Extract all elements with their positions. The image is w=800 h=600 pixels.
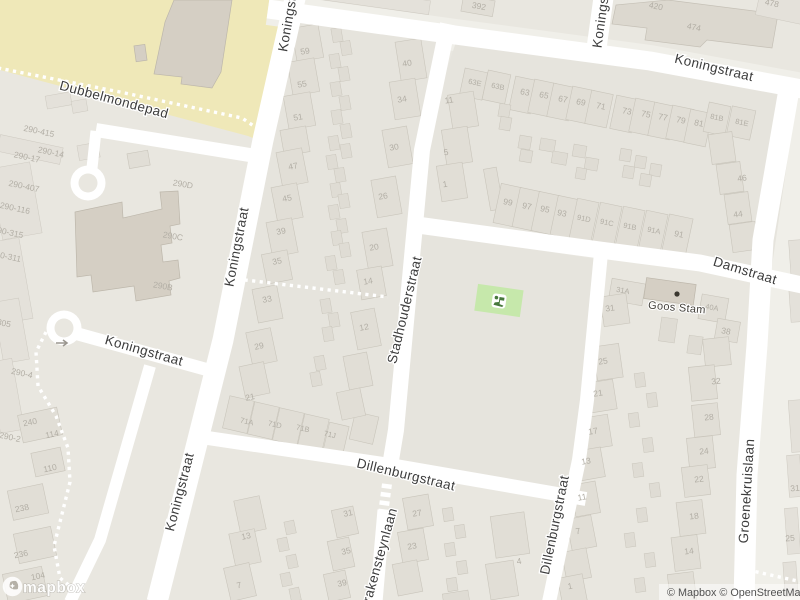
svg-text:20: 20 [368, 241, 379, 253]
svg-text:32: 32 [711, 376, 722, 387]
svg-text:18: 18 [689, 510, 700, 521]
svg-text:27: 27 [411, 507, 422, 519]
svg-text:21: 21 [593, 387, 604, 398]
svg-text:46: 46 [737, 172, 748, 183]
svg-text:25: 25 [598, 355, 609, 366]
svg-text:51: 51 [292, 111, 303, 123]
svg-text:28: 28 [704, 412, 715, 423]
svg-text:38: 38 [720, 325, 731, 337]
svg-text:17: 17 [588, 425, 599, 436]
svg-text:26: 26 [377, 190, 388, 202]
svg-text:14: 14 [684, 545, 695, 556]
svg-text:mapbox: mapbox [23, 580, 85, 597]
svg-text:14: 14 [362, 275, 373, 287]
svg-text:13: 13 [580, 455, 591, 467]
svg-text:31: 31 [605, 302, 616, 313]
svg-text:59: 59 [299, 45, 310, 57]
svg-text:31: 31 [790, 483, 800, 494]
svg-text:22: 22 [694, 473, 705, 484]
svg-text:30: 30 [388, 141, 399, 153]
svg-text:25: 25 [785, 533, 795, 544]
svg-text:55: 55 [296, 78, 307, 90]
svg-text:34: 34 [397, 93, 408, 104]
svg-text:11: 11 [444, 94, 455, 105]
svg-text:44: 44 [733, 208, 744, 219]
svg-text:© Mapbox © OpenStreetMap: © Mapbox © OpenStreetMap [667, 587, 800, 599]
svg-text:23: 23 [406, 540, 417, 552]
svg-text:24: 24 [699, 446, 710, 457]
svg-text:40: 40 [402, 57, 413, 68]
